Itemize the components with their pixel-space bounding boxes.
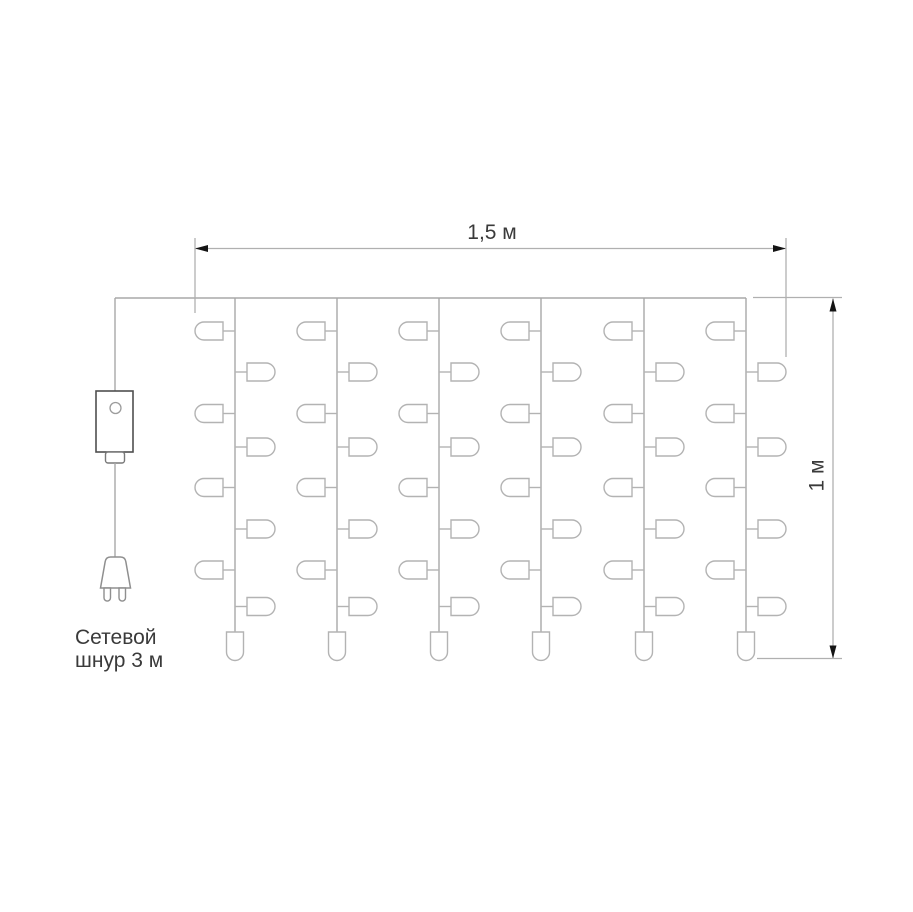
bulb-left	[399, 479, 427, 497]
width-arrow-right	[773, 245, 786, 252]
bulb-left	[501, 322, 529, 340]
controller-circle	[110, 403, 121, 414]
bulb-right	[656, 520, 684, 538]
bulb-left	[195, 405, 223, 423]
bulb-left	[706, 479, 734, 497]
controller-outlet	[106, 452, 125, 463]
bulb-left	[706, 561, 734, 579]
bulb-end	[636, 632, 653, 661]
bulb-right	[553, 598, 581, 616]
bulb-right	[758, 363, 786, 381]
bulb-left	[399, 405, 427, 423]
bulb-right	[349, 363, 377, 381]
width-arrow-left	[195, 245, 208, 252]
bulb-right	[247, 363, 275, 381]
bulb-left	[195, 322, 223, 340]
bulb-right	[349, 438, 377, 456]
bulb-left	[297, 322, 325, 340]
bulb-left	[604, 561, 632, 579]
bulb-right	[451, 520, 479, 538]
bulb-right	[451, 598, 479, 616]
bulb-left	[604, 322, 632, 340]
bulb-end	[227, 632, 244, 661]
bulb-right	[349, 520, 377, 538]
bulb-right	[451, 438, 479, 456]
bulb-left	[604, 479, 632, 497]
bulb-left	[399, 561, 427, 579]
power-cord-label-line2: шнур 3 м	[75, 649, 163, 672]
bulb-right	[247, 598, 275, 616]
bulb-left	[195, 479, 223, 497]
controller-box	[96, 391, 133, 452]
height-dimension-label: 1 м	[806, 436, 829, 516]
bulb-right	[247, 520, 275, 538]
bulb-right	[656, 363, 684, 381]
power-cord-label-line1: Сетевой	[75, 626, 163, 649]
bulb-right	[758, 520, 786, 538]
bulb-right	[656, 598, 684, 616]
bulb-left	[501, 405, 529, 423]
bulb-left	[501, 479, 529, 497]
width-dimension-label: 1,5 м	[402, 221, 582, 244]
bulb-end	[431, 632, 448, 661]
bulb-end	[329, 632, 346, 661]
bulb-right	[349, 598, 377, 616]
bulb-left	[604, 405, 632, 423]
height-arrow-top	[830, 299, 837, 312]
bulb-right	[656, 438, 684, 456]
bulb-right	[758, 438, 786, 456]
bulb-left	[297, 561, 325, 579]
bulb-end	[738, 632, 755, 661]
power-plug-body	[101, 557, 131, 588]
bulb-right	[451, 363, 479, 381]
bulb-right	[758, 598, 786, 616]
diagram-canvas: 1,5 м 1 м Сетевой шнур 3 м	[0, 0, 913, 912]
plug-prong	[104, 588, 111, 601]
curtain-diagram	[0, 0, 913, 912]
bulb-left	[297, 405, 325, 423]
bulb-left	[399, 322, 427, 340]
bulb-left	[706, 405, 734, 423]
bulb-right	[247, 438, 275, 456]
bulb-right	[553, 438, 581, 456]
bulb-left	[297, 479, 325, 497]
power-cord-label: Сетевой шнур 3 м	[75, 626, 163, 672]
bulb-left	[195, 561, 223, 579]
bulb-right	[553, 363, 581, 381]
bulb-right	[553, 520, 581, 538]
height-arrow-bottom	[830, 646, 837, 659]
bulb-end	[533, 632, 550, 660]
bulb-left	[706, 322, 734, 340]
bulb-left	[501, 561, 529, 579]
plug-prong	[119, 588, 126, 601]
